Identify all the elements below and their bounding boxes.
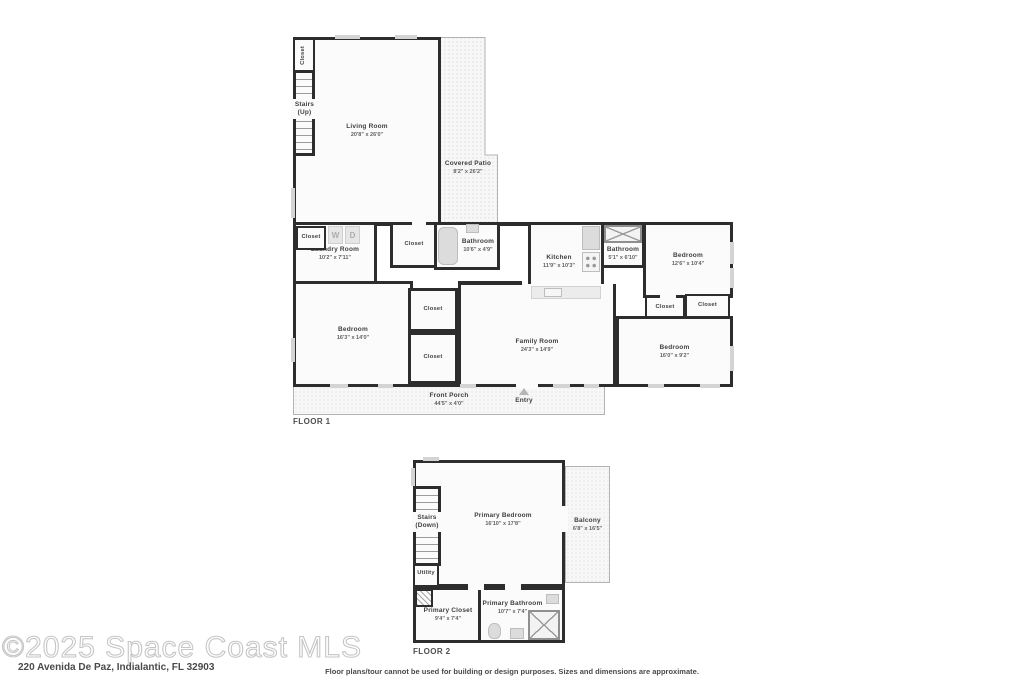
stairs-up-label: Stairs (Up) [291, 99, 318, 119]
room-dims: 16'0" x 9'2" [660, 353, 689, 360]
entry-arrow-icon [519, 388, 529, 395]
window-marker [730, 268, 734, 288]
window-marker [460, 384, 476, 388]
room-name: Closet [424, 306, 443, 313]
window-marker [553, 384, 570, 388]
room-name: Bedroom [338, 326, 368, 334]
window-marker [423, 457, 439, 461]
sink-icon [466, 224, 479, 233]
window-marker [648, 384, 664, 388]
room-dims: 24'3" x 14'9" [521, 347, 553, 354]
window-marker [411, 468, 415, 486]
stairs-label-line2: (Down) [415, 522, 438, 530]
room-name: Closet [698, 302, 717, 309]
room-dims: 12'6" x 10'4" [672, 261, 704, 268]
room-dims: 16'3" x 14'0" [337, 335, 369, 342]
stairs-label-line1: Stairs [295, 101, 314, 109]
room-dims: 11'9" x 10'3" [543, 263, 575, 270]
room-bedroom-bottom-right: Bedroom 16'0" x 9'2" [616, 316, 733, 387]
room-name: Front Porch [429, 392, 468, 400]
stairs-label-line1: Stairs [417, 514, 436, 522]
wall-segment [375, 222, 392, 226]
stove-icon [582, 252, 600, 272]
room-dims: 10'6" x 4'9" [463, 247, 492, 254]
window-marker [730, 346, 734, 371]
room-dims: 20'8" x 26'0" [351, 132, 383, 139]
closet-hall: Closet [390, 222, 438, 268]
stairs-label-line2: (Up) [298, 109, 312, 117]
dryer-box: D [345, 226, 360, 244]
room-name: Bathroom [462, 238, 494, 246]
room-name: Balcony [574, 517, 601, 525]
room-name: Bedroom [673, 252, 703, 260]
room-dims: 16'10" x 17'8" [485, 521, 520, 528]
room-family-room: Family Room 24'3" x 14'9" [458, 284, 616, 387]
room-dims: 8'2" x 26'2" [453, 169, 482, 176]
toilet-icon [488, 623, 501, 639]
room-name: Living Room [346, 123, 388, 131]
window-marker [335, 35, 360, 39]
entry-marker: Entry [510, 388, 538, 405]
window-marker [730, 242, 734, 264]
room-name: Closet [300, 46, 307, 65]
covered-patio-area [440, 37, 498, 225]
room-name: Primary Bedroom [474, 512, 532, 520]
sink-icon [546, 594, 559, 604]
stairs-down-label: Stairs (Down) [412, 512, 442, 532]
room-name: Bedroom [660, 344, 690, 352]
sink-icon [510, 628, 524, 639]
room-dims: 9'4" x 7'4" [435, 616, 461, 623]
room-dims: 10'7" x 7'4" [498, 609, 527, 616]
room-dims: 5'1" x 6'10" [608, 255, 637, 262]
covered-patio-label: Covered Patio 8'2" x 26'2" [436, 156, 500, 180]
shower-icon [528, 610, 560, 640]
floor1-label: FLOOR 1 [293, 417, 330, 426]
room-name: Bathroom [607, 246, 639, 254]
door-gap [468, 584, 484, 590]
closet-mid-1: Closet [408, 288, 458, 332]
door-gap [412, 221, 426, 227]
room-bedroom-top-right: Bedroom 12'6" x 10'4" [643, 222, 733, 298]
room-dims: 6'8" x 16'5" [573, 526, 602, 533]
fridge-icon [582, 226, 600, 250]
window-marker [330, 384, 348, 388]
window-marker [584, 384, 599, 388]
room-dims: 10'2" x 7'11" [319, 255, 351, 262]
closet-right-2: Closet [685, 294, 730, 318]
wall-segment [458, 281, 522, 285]
bathtub-icon [438, 227, 458, 265]
closet-top-left: Closet [293, 38, 315, 72]
room-name: Primary Closet [424, 607, 473, 615]
closet-mid-2: Closet [408, 332, 458, 384]
entry-label: Entry [515, 397, 533, 405]
wall-segment [408, 382, 461, 387]
chimney-hatch [415, 589, 433, 607]
wall-segment [498, 222, 530, 226]
room-name: Utility [417, 570, 435, 577]
window-marker [291, 188, 295, 218]
window-marker [395, 35, 417, 39]
room-name: Closet [656, 304, 675, 311]
door-gap [505, 584, 521, 590]
room-dims: 44'5" x 4'0" [434, 401, 463, 408]
closet-laundry: Closet [296, 226, 326, 250]
kitchen-sink-icon [544, 288, 562, 297]
room-name: Kitchen [546, 254, 571, 262]
room-name: Closet [424, 354, 443, 361]
kitchen-counter [531, 286, 601, 299]
window-marker [700, 384, 720, 388]
room-name: Closet [302, 234, 321, 241]
shower-icon [604, 225, 642, 243]
room-name: Covered Patio [445, 160, 491, 168]
room-bedroom-bottom-left: Bedroom 16'3" x 14'0" [293, 281, 413, 387]
primary-bedroom-label: Primary Bedroom 16'10" x 17'8" [441, 500, 565, 540]
window-marker [378, 384, 393, 388]
disclaimer-text: Floor plans/tour cannot be used for buil… [0, 667, 1024, 676]
balcony-area: Balcony 6'8" x 16'5" [565, 466, 610, 583]
door-gap [660, 295, 676, 300]
floor-plan-page: Covered Patio 8'2" x 26'2" Front Porch 4… [0, 0, 1024, 683]
room-name: Family Room [515, 338, 558, 346]
floor2-label: FLOOR 2 [413, 647, 450, 656]
room-name: Primary Bathroom [483, 600, 543, 608]
front-porch-area: Front Porch 44'5" x 4'0" [293, 385, 605, 415]
mls-watermark: ©2025 Space Coast MLS [2, 633, 362, 663]
room-name: Closet [405, 241, 424, 248]
washer-box: W [328, 226, 343, 244]
room-living-room: Living Room 20'8" x 26'0" [293, 37, 441, 225]
window-marker [291, 338, 295, 362]
